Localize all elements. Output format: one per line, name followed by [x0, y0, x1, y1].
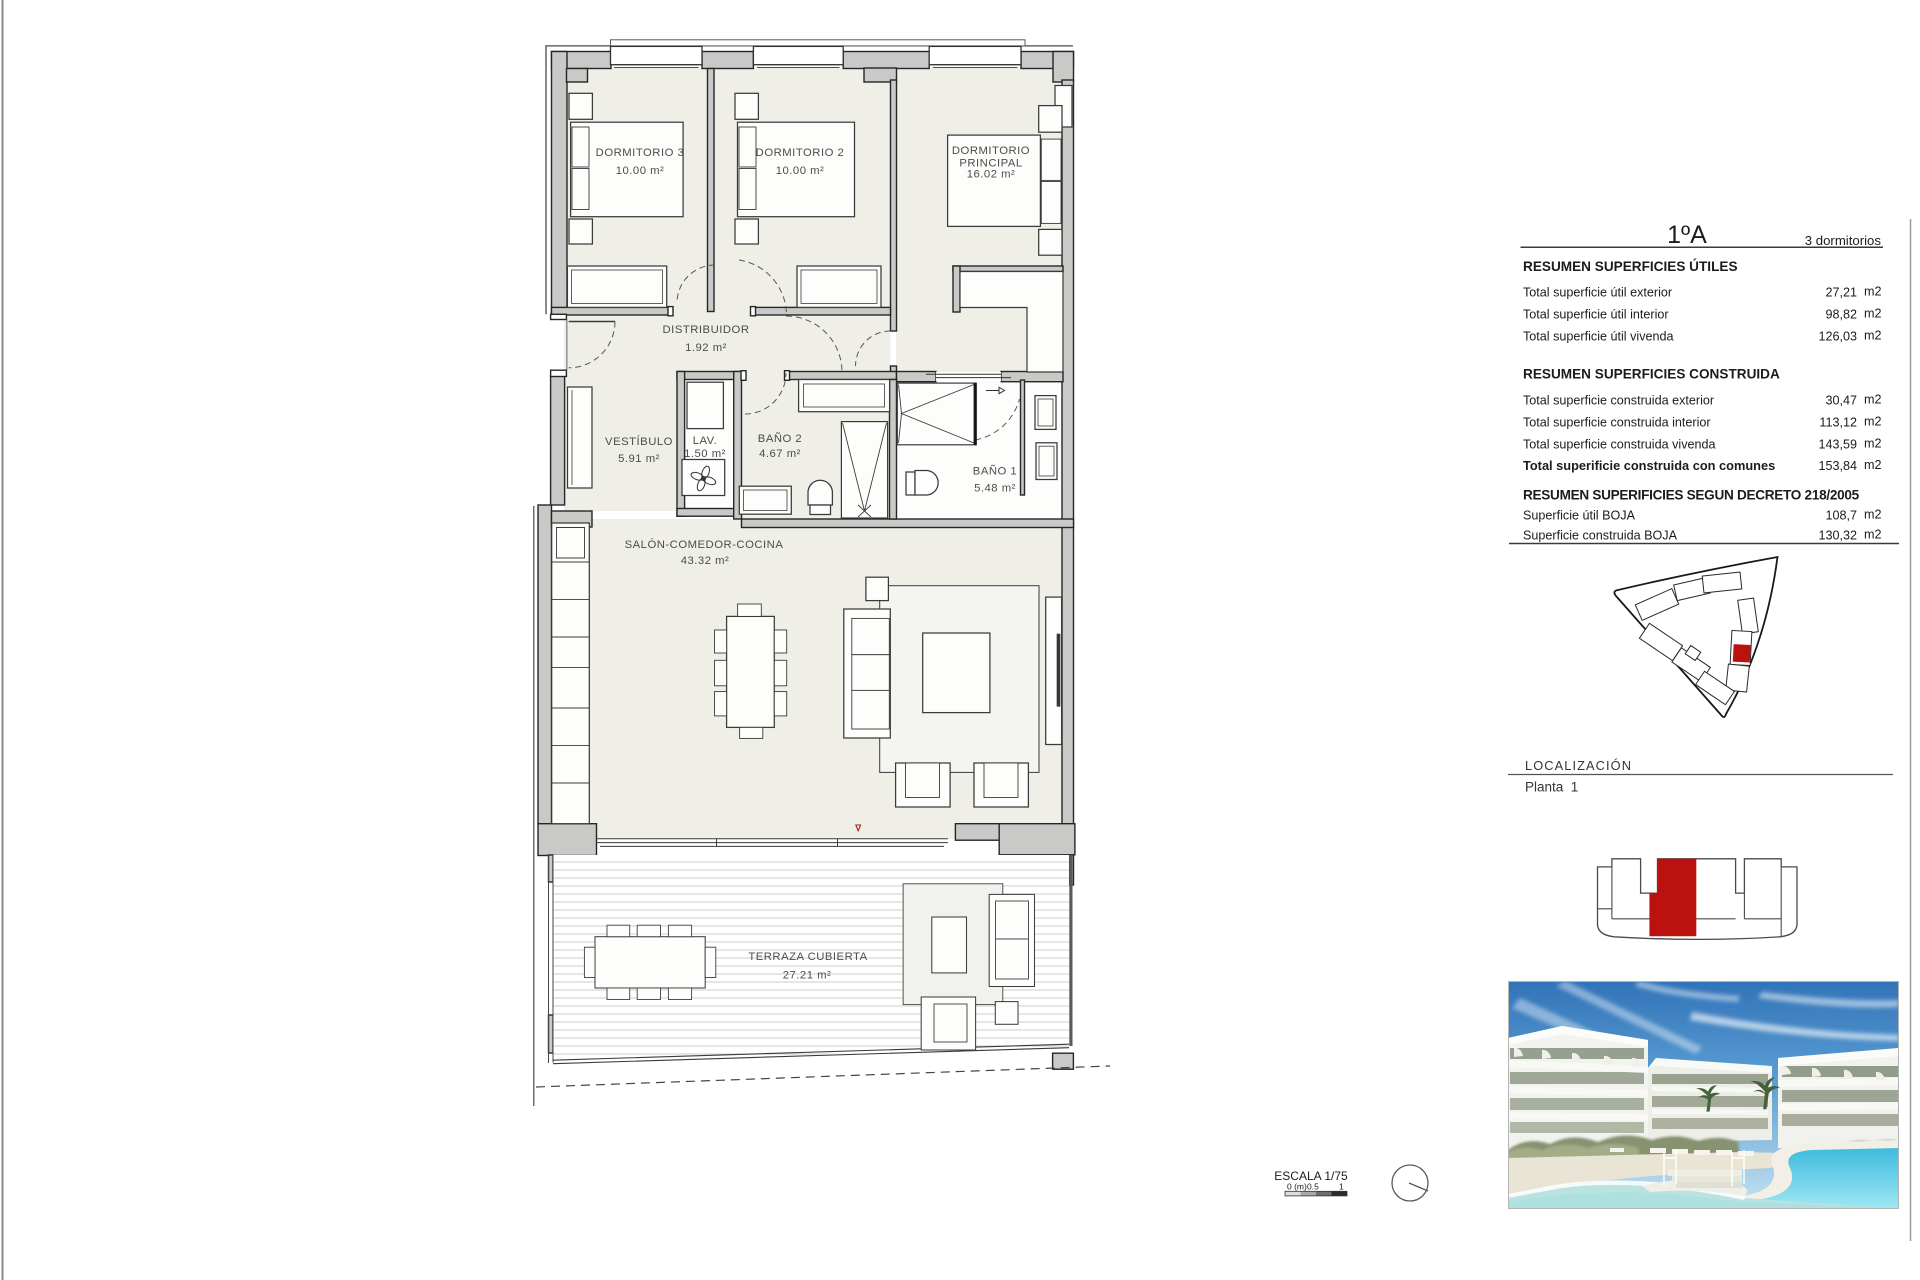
svg-text:1.92 m²: 1.92 m² [685, 342, 727, 354]
svg-text:27,21: 27,21 [1825, 286, 1857, 300]
svg-text:RESUMEN SUPERFICIES ÚTILES: RESUMEN SUPERFICIES ÚTILES [1523, 259, 1738, 274]
svg-text:4.67 m²: 4.67 m² [759, 448, 801, 460]
svg-text:VESTÍBULO: VESTÍBULO [605, 435, 673, 448]
svg-text:DORMITORIO: DORMITORIO [952, 145, 1030, 157]
svg-text:130,32: 130,32 [1818, 529, 1857, 543]
svg-text:43.32 m²: 43.32 m² [681, 555, 730, 567]
svg-text:m2: m2 [1864, 508, 1882, 522]
svg-text:Superficie construida BOJA: Superficie construida BOJA [1523, 529, 1678, 543]
svg-text:SALÓN-COMEDOR-COCINA: SALÓN-COMEDOR-COCINA [625, 538, 784, 551]
svg-text:m2: m2 [1864, 307, 1882, 321]
svg-text:LAV.: LAV. [693, 435, 718, 447]
svg-text:1.50 m²: 1.50 m² [684, 448, 726, 460]
svg-text:3 dormitorios: 3 dormitorios [1805, 233, 1882, 248]
svg-text:143,59: 143,59 [1818, 438, 1857, 452]
svg-text:Total superficie útil interior: Total superficie útil interior [1523, 308, 1669, 322]
svg-text:BAÑO 1: BAÑO 1 [973, 465, 1017, 478]
svg-text:Total superficie construida ex: Total superficie construida exterior [1523, 394, 1714, 408]
svg-text:0.5: 0.5 [1307, 1182, 1319, 1192]
svg-text:1: 1 [1339, 1182, 1344, 1192]
svg-text:LOCALIZACIÓN: LOCALIZACIÓN [1525, 758, 1632, 773]
svg-text:Total superficie útil vivenda: Total superficie útil vivenda [1523, 330, 1674, 344]
svg-text:m2: m2 [1864, 458, 1882, 472]
svg-text:BAÑO 2: BAÑO 2 [758, 432, 802, 445]
svg-text:m2: m2 [1864, 329, 1882, 343]
svg-text:1ºA: 1ºA [1667, 221, 1707, 249]
svg-text:10.00 m²: 10.00 m² [776, 165, 825, 177]
svg-text:Superficie útil BOJA: Superficie útil BOJA [1523, 509, 1636, 523]
svg-text:5.91 m²: 5.91 m² [618, 453, 660, 465]
svg-text:113,12: 113,12 [1819, 416, 1857, 430]
svg-text:Total superficie construida vi: Total superficie construida vivenda [1523, 438, 1716, 452]
svg-text:m2: m2 [1864, 415, 1882, 429]
svg-text:16.02 m²: 16.02 m² [967, 169, 1016, 181]
svg-text:30,47: 30,47 [1825, 394, 1857, 408]
svg-text:DORMITORIO 2: DORMITORIO 2 [756, 147, 845, 159]
svg-text:m2: m2 [1864, 285, 1882, 299]
svg-text:RESUMEN SUPERFICIES CONSTRUIDA: RESUMEN SUPERFICIES CONSTRUIDA [1523, 367, 1780, 382]
svg-text:DISTRIBUIDOR: DISTRIBUIDOR [663, 324, 750, 336]
svg-text:10.00 m²: 10.00 m² [616, 165, 665, 177]
svg-text:m2: m2 [1864, 528, 1882, 542]
svg-text:98,82: 98,82 [1825, 308, 1857, 322]
svg-text:DORMITORIO 3: DORMITORIO 3 [596, 147, 685, 159]
svg-text:Total superficie construida in: Total superficie construida interior [1523, 416, 1711, 430]
svg-text:27.21 m²: 27.21 m² [783, 970, 832, 982]
svg-text:0 (m): 0 (m) [1287, 1182, 1307, 1192]
svg-text:153,84: 153,84 [1818, 459, 1857, 473]
svg-text:Total superificie construida c: Total superificie construida con comunes [1523, 458, 1775, 473]
svg-text:126,03: 126,03 [1818, 330, 1857, 344]
svg-text:Planta 1: Planta 1 [1525, 780, 1578, 795]
svg-text:5.48 m²: 5.48 m² [974, 483, 1016, 495]
svg-text:108,7: 108,7 [1825, 509, 1857, 523]
svg-text:Total superficie útil exterior: Total superficie útil exterior [1523, 286, 1672, 300]
svg-text:RESUMEN SUPERIFICIES SEGUN DEC: RESUMEN SUPERIFICIES SEGUN DECRETO 218/2… [1523, 488, 1860, 503]
svg-text:m2: m2 [1864, 393, 1882, 407]
svg-text:m2: m2 [1864, 437, 1882, 451]
svg-text:TERRAZA CUBIERTA: TERRAZA CUBIERTA [748, 951, 867, 963]
